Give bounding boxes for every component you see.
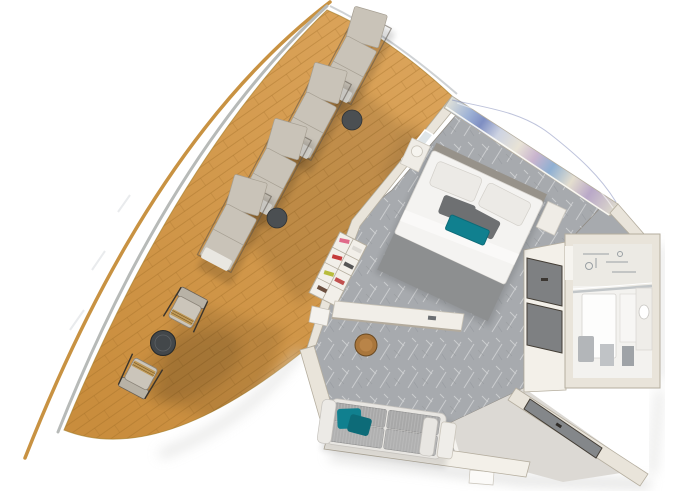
floorplan-svg xyxy=(0,0,680,491)
wardrobe-wall xyxy=(524,242,566,392)
desk-items xyxy=(428,316,436,321)
wardrobe-door xyxy=(527,303,562,353)
lounger-side-table xyxy=(267,208,287,228)
deck-planter-box xyxy=(309,306,330,326)
balcony-dining-table xyxy=(151,331,176,356)
shower-area xyxy=(573,244,652,286)
bathroom xyxy=(565,234,660,388)
bath-mat xyxy=(622,346,634,366)
lounger-side-table xyxy=(342,110,362,130)
bath-mat xyxy=(578,336,594,362)
bath-mat xyxy=(600,344,614,366)
bathroom-door-opening xyxy=(565,246,573,280)
stool-top xyxy=(360,339,373,352)
sink-basin xyxy=(639,305,649,319)
floorplan-render xyxy=(0,0,680,491)
door-handle xyxy=(541,278,548,281)
